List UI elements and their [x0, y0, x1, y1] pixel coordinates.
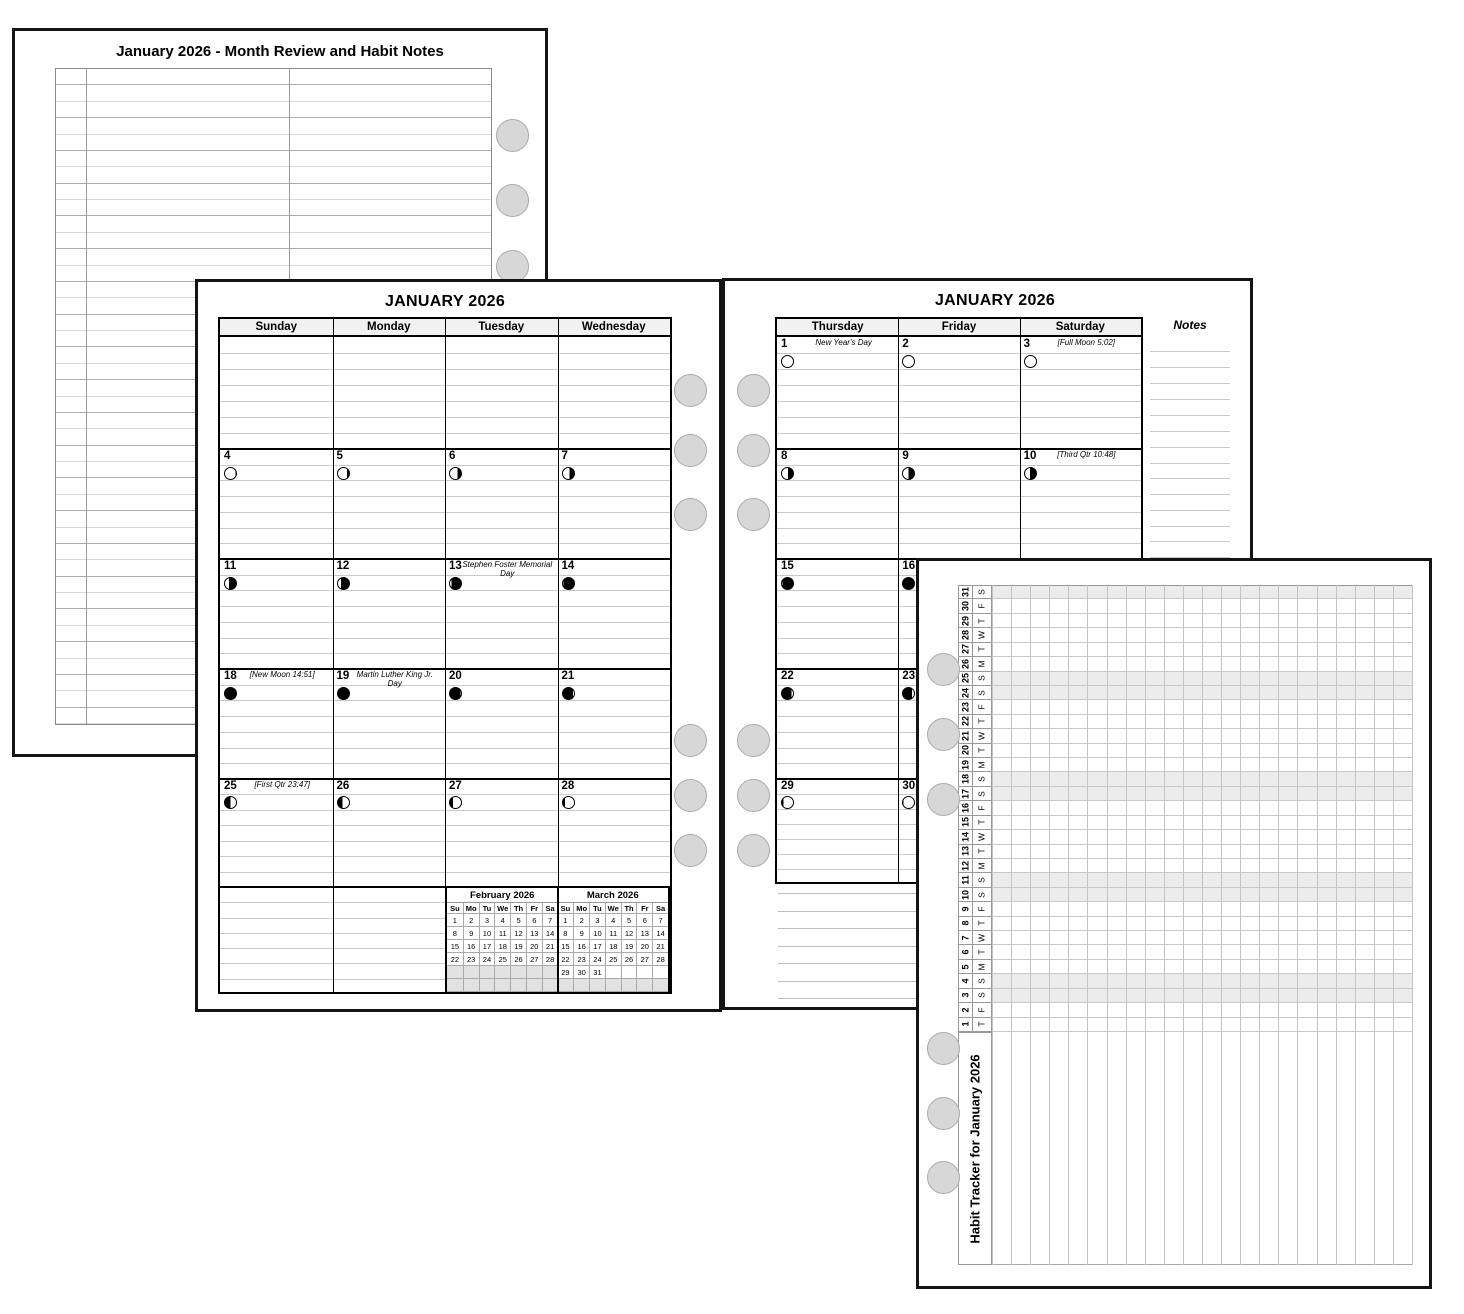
ruled-line — [56, 183, 491, 184]
moon-phase-icon — [224, 687, 237, 700]
habit-column-line — [992, 585, 993, 1265]
mini-day-name: Sa — [542, 903, 558, 914]
calendar-grid: SundayMondayTuesdayWednesday4567111213St… — [218, 317, 672, 994]
tracker-day-number-cell: 29 — [958, 614, 973, 628]
ruled-line — [56, 215, 491, 216]
mini-date-cell: 9 — [463, 927, 479, 940]
mini-date-cell — [510, 979, 526, 992]
ruled-line — [777, 385, 1141, 386]
binder-hole — [927, 718, 960, 751]
tracker-day-number-cell: 5 — [958, 960, 973, 974]
mini-date-cell: 24 — [479, 953, 495, 966]
tracker-day-letter-cell: F — [973, 1003, 992, 1017]
day-header-wednesday: Wednesday — [558, 319, 671, 337]
mini-date-cell — [621, 979, 637, 992]
mini-date-cell: 28 — [652, 953, 668, 966]
review-page-title: January 2026 - Month Review and Habit No… — [15, 43, 545, 60]
mini-date-cell — [463, 966, 479, 979]
moon-phase-icon — [224, 467, 237, 480]
date-number: 2 — [902, 338, 908, 350]
ruled-line — [777, 417, 1141, 418]
mini-date-cell: 28 — [542, 953, 558, 966]
mini-date-cell: 11 — [494, 927, 510, 940]
mini-date-cell: 19 — [510, 940, 526, 953]
moon-phase-icon — [562, 577, 575, 590]
tracker-day-number: 18 — [961, 774, 970, 784]
notes-line — [1150, 431, 1230, 432]
tracker-day-number-cell: 4 — [958, 974, 973, 988]
mini-date-cell: 12 — [621, 927, 637, 940]
tracker-day-number-cell: 11 — [958, 873, 973, 887]
tracker-day-letter-cell: S — [973, 989, 992, 1003]
binder-hole — [927, 1161, 960, 1194]
tracker-day-number-cell: 18 — [958, 772, 973, 786]
tracker-day-letter: F — [978, 1007, 987, 1012]
tracker-day-letter-cell: S — [973, 772, 992, 786]
tracker-day-letter-cell: W — [973, 628, 992, 642]
habit-title-cell: Habit Tracker for January 2026 — [958, 1032, 992, 1265]
date-number: 29 — [781, 780, 794, 792]
mini-date-cell: 15 — [558, 940, 574, 953]
tracker-day-letter-cell: M — [973, 758, 992, 772]
date-annotation: [First Qtr 23:47] — [237, 781, 328, 790]
notes-line — [1150, 510, 1230, 511]
habit-tracker-body: 31S30F29T28W27T26M25S24S23F22T21W20T19M1… — [919, 561, 1429, 1286]
tracker-day-number-cell: 21 — [958, 729, 973, 743]
ruled-line — [56, 150, 491, 151]
notes-line — [1150, 367, 1230, 368]
habit-column-line — [1049, 585, 1050, 1265]
habit-column-line — [1259, 585, 1260, 1265]
habit-column-line — [1202, 585, 1203, 1265]
tracker-day-letter-cell: W — [973, 931, 992, 945]
mini-date-cell: 18 — [605, 940, 621, 953]
date-number: 16 — [902, 560, 915, 572]
mini-date-cell: 6 — [526, 914, 542, 927]
moon-phase-icon — [449, 467, 462, 480]
tracker-day-letter-cell: T — [973, 744, 992, 758]
tracker-day-number: 15 — [961, 817, 970, 827]
column-divider — [86, 69, 87, 724]
mini-date-cell: 26 — [510, 953, 526, 966]
mini-month: February 2026SuMoTuWeThFrSa1234567891011… — [447, 888, 558, 992]
mini-date-cell: 22 — [558, 953, 574, 966]
mini-date-cell: 16 — [573, 940, 589, 953]
tracker-day-number-cell: 30 — [958, 599, 973, 613]
habit-tracker-title: Habit Tracker for January 2026 — [968, 1054, 983, 1243]
mini-date-cell: 2 — [573, 914, 589, 927]
ruled-line — [777, 528, 1141, 529]
page-habit-tracker: 31S30F29T28W27T26M25S24S23F22T21W20T19M1… — [916, 558, 1432, 1289]
notes-line — [1150, 463, 1230, 464]
mini-date-cell: 14 — [542, 927, 558, 940]
date-number: 3 — [1024, 338, 1030, 350]
mini-date-cell — [510, 966, 526, 979]
moon-phase-icon — [781, 577, 794, 590]
binder-hole — [737, 779, 770, 812]
tracker-day-letter: F — [978, 906, 987, 911]
date-number: 30 — [902, 780, 915, 792]
tracker-day-number-cell: 1 — [958, 1018, 973, 1032]
tracker-day-letter: T — [978, 921, 987, 926]
binder-hole — [927, 783, 960, 816]
mini-date-cell — [605, 979, 621, 992]
mini-date-cell: 2 — [463, 914, 479, 927]
column-divider — [898, 319, 899, 882]
tracker-day-number: 14 — [961, 832, 970, 842]
tracker-day-letter-cell: S — [973, 888, 992, 902]
moon-phase-icon — [781, 687, 794, 700]
tracker-day-letter-cell: S — [973, 672, 992, 686]
tracker-day-number-cell: 3 — [958, 989, 973, 1003]
tracker-day-number-cell: 6 — [958, 945, 973, 959]
mini-date-cell: 7 — [542, 914, 558, 927]
mini-date-cell: 20 — [526, 940, 542, 953]
mini-date-cell: 27 — [636, 953, 652, 966]
mini-date-cell — [652, 966, 668, 979]
day-header-tuesday: Tuesday — [445, 319, 558, 337]
moon-phase-icon — [449, 796, 462, 809]
tracker-day-letter: F — [978, 704, 987, 709]
habit-column-line — [1393, 585, 1394, 1265]
day-header-thursday: Thursday — [777, 319, 898, 337]
habit-column-line — [1278, 585, 1279, 1265]
notes-line — [1150, 447, 1230, 448]
moon-phase-icon — [781, 467, 794, 480]
mini-day-name: We — [605, 903, 621, 914]
notes-line — [1150, 526, 1230, 527]
date-number: 25 — [224, 780, 237, 792]
tracker-day-number-cell: 22 — [958, 715, 973, 729]
moon-phase-icon — [902, 577, 915, 590]
tracker-day-letter-cell: F — [973, 700, 992, 714]
mini-date-cell: 19 — [621, 940, 637, 953]
mini-date-cell: 14 — [652, 927, 668, 940]
tracker-day-number: 2 — [961, 1007, 970, 1012]
tracker-day-letter-cell: T — [973, 643, 992, 657]
mini-day-name: Tu — [589, 903, 605, 914]
tracker-day-letter: W — [978, 732, 987, 740]
mini-date-cell: 21 — [652, 940, 668, 953]
tracker-day-number-cell: 20 — [958, 744, 973, 758]
mini-date-cell: 6 — [636, 914, 652, 927]
binder-hole — [674, 779, 707, 812]
tracker-day-letter: T — [978, 1022, 987, 1027]
mini-month: March 2026SuMoTuWeThFrSa1234567891011121… — [558, 888, 669, 992]
mini-date-cell: 17 — [589, 940, 605, 953]
tracker-day-letter-cell: T — [973, 1018, 992, 1032]
tracker-day-number-cell: 9 — [958, 902, 973, 916]
date-number: 11 — [224, 560, 236, 572]
tracker-day-number-cell: 26 — [958, 657, 973, 671]
binder-hole — [927, 1097, 960, 1130]
date-number: 20 — [449, 670, 462, 682]
date-number: 21 — [562, 670, 575, 682]
mini-date-cell: 5 — [510, 914, 526, 927]
tracker-day-number: 11 — [961, 875, 970, 885]
tracker-day-number: 16 — [961, 803, 970, 813]
tracker-day-letter: W — [978, 934, 987, 942]
binder-hole — [674, 374, 707, 407]
moon-phase-icon — [902, 467, 915, 480]
habit-column-line — [1336, 585, 1337, 1265]
mini-date-cell: 12 — [510, 927, 526, 940]
tracker-day-number: 20 — [961, 745, 970, 755]
tracker-day-letter: S — [978, 892, 987, 898]
date-number: 23 — [902, 670, 915, 682]
tracker-day-letter: T — [978, 950, 987, 955]
date-number: 18 — [224, 670, 237, 682]
tracker-day-number: 30 — [961, 601, 970, 611]
mini-date-cell — [463, 979, 479, 992]
binder-hole — [737, 724, 770, 757]
mini-day-name: Su — [558, 903, 574, 914]
tracker-day-letter: M — [978, 862, 987, 869]
mini-date-cell: 18 — [494, 940, 510, 953]
tracker-day-number: 21 — [961, 731, 970, 741]
tracker-day-letter: S — [978, 589, 987, 595]
tracker-day-letter: M — [978, 963, 987, 970]
date-annotation: [Third Qtr 10:48] — [1037, 451, 1136, 460]
ruled-line — [56, 232, 491, 233]
mini-date-cell — [652, 979, 668, 992]
mini-date-cell: 31 — [589, 966, 605, 979]
binder-hole — [496, 184, 529, 217]
date-number: 12 — [337, 560, 350, 572]
tracker-day-number-cell: 25 — [958, 672, 973, 686]
mini-date-cell: 21 — [542, 940, 558, 953]
mini-date-cell: 24 — [589, 953, 605, 966]
day-header-sunday: Sunday — [220, 319, 333, 337]
moon-phase-icon — [449, 687, 462, 700]
tracker-day-letter-cell: T — [973, 945, 992, 959]
tracker-day-number: 25 — [961, 673, 970, 683]
date-number: 22 — [781, 670, 794, 682]
tracker-day-number-cell: 14 — [958, 830, 973, 844]
tracker-day-number-cell: 24 — [958, 686, 973, 700]
binder-hole — [927, 1032, 960, 1065]
tracker-day-number: 26 — [961, 659, 970, 669]
habit-column-line — [1183, 585, 1184, 1265]
tracker-day-letter-cell: T — [973, 614, 992, 628]
tracker-day-letter: S — [978, 978, 987, 984]
tracker-day-letter-cell: W — [973, 830, 992, 844]
date-number: 6 — [449, 450, 455, 462]
mini-date-cell — [526, 979, 542, 992]
tracker-day-letter: S — [978, 877, 987, 883]
tracker-day-letter-cell: T — [973, 816, 992, 830]
binder-hole — [674, 834, 707, 867]
tracker-day-number: 24 — [961, 688, 970, 698]
mini-date-cell: 7 — [652, 914, 668, 927]
tracker-day-number: 23 — [961, 702, 970, 712]
ruled-line — [56, 199, 491, 200]
date-number: 26 — [337, 780, 350, 792]
moon-phase-icon — [1024, 355, 1037, 368]
moon-phase-icon — [337, 796, 350, 809]
mini-date-cell — [573, 979, 589, 992]
tracker-day-letter-cell: F — [973, 902, 992, 916]
tracker-day-letter: T — [978, 820, 987, 825]
date-number: 15 — [781, 560, 794, 572]
mini-day-name: Th — [510, 903, 526, 914]
moon-phase-icon — [224, 796, 237, 809]
moon-phase-icon — [562, 467, 575, 480]
mini-day-name: Fr — [636, 903, 652, 914]
notes-line — [1150, 415, 1230, 416]
date-annotation: Martin Luther King Jr. Day — [350, 671, 441, 688]
habit-column-line — [1087, 585, 1088, 1265]
binder-hole — [737, 498, 770, 531]
mini-date-cell — [494, 966, 510, 979]
ruled-line — [56, 117, 491, 118]
tracker-day-number: 3 — [961, 993, 970, 998]
tracker-day-letter: F — [978, 805, 987, 810]
date-number: 27 — [449, 780, 462, 792]
mini-date-cell: 27 — [526, 953, 542, 966]
ruled-line — [56, 166, 491, 167]
tracker-day-letter-cell: S — [973, 873, 992, 887]
mini-date-cell — [542, 966, 558, 979]
mini-date-cell: 5 — [621, 914, 637, 927]
date-number: 8 — [781, 450, 787, 462]
date-number: 28 — [562, 780, 575, 792]
habit-grid: 31S30F29T28W27T26M25S24S23F22T21W20T19M1… — [958, 585, 1412, 1265]
mini-date-cell: 13 — [526, 927, 542, 940]
mini-date-cell: 13 — [636, 927, 652, 940]
mini-date-cell — [526, 966, 542, 979]
notes-line — [1150, 399, 1230, 400]
tracker-day-number: 28 — [961, 630, 970, 640]
ruled-line — [777, 401, 1141, 402]
tracker-day-number-cell: 17 — [958, 787, 973, 801]
mini-day-name: Th — [621, 903, 637, 914]
mini-date-cell: 8 — [447, 927, 463, 940]
ruled-line — [777, 353, 1141, 354]
day-header-friday: Friday — [898, 319, 1019, 337]
ruled-line — [777, 496, 1141, 497]
tracker-day-number-cell: 2 — [958, 1003, 973, 1017]
tracker-day-letter: S — [978, 993, 987, 999]
tracker-day-letter-cell: T — [973, 845, 992, 859]
tracker-day-number-cell: 15 — [958, 816, 973, 830]
tracker-day-number-cell: 31 — [958, 585, 973, 599]
tracker-day-letter-cell: S — [973, 686, 992, 700]
notes-line — [1150, 351, 1230, 352]
mini-date-cell — [558, 979, 574, 992]
mini-date-cell: 4 — [494, 914, 510, 927]
tracker-day-letter-cell: W — [973, 729, 992, 743]
habit-column-line — [1126, 585, 1127, 1265]
mini-date-cell: 3 — [479, 914, 495, 927]
mini-date-cell — [542, 979, 558, 992]
tracker-day-letter: S — [978, 675, 987, 681]
tracker-day-number: 10 — [961, 889, 970, 899]
mini-date-cell: 8 — [558, 927, 574, 940]
habit-column-line — [1317, 585, 1318, 1265]
ruled-line — [56, 101, 491, 102]
binder-hole — [496, 250, 529, 283]
habit-column-line — [1107, 585, 1108, 1265]
moon-phase-icon — [562, 687, 575, 700]
mini-date-cell — [447, 966, 463, 979]
mini-date-cell: 9 — [573, 927, 589, 940]
habit-column-line — [1030, 585, 1031, 1265]
tracker-day-letter: W — [978, 833, 987, 841]
tracker-day-letter: M — [978, 761, 987, 768]
mini-day-name: Mo — [463, 903, 479, 914]
mini-month-title: March 2026 — [558, 888, 669, 903]
mini-date-cell — [636, 966, 652, 979]
tracker-day-letter-cell: F — [973, 801, 992, 815]
notes-line — [1150, 478, 1230, 479]
day-header-saturday: Saturday — [1020, 319, 1141, 337]
notes-line — [1150, 541, 1230, 542]
mini-day-name: Su — [447, 903, 463, 914]
mini-date-cell: 11 — [605, 927, 621, 940]
date-number: 10 — [1024, 450, 1037, 462]
habit-column-line — [1355, 585, 1356, 1265]
binder-hole — [496, 119, 529, 152]
mini-day-name: Fr — [526, 903, 542, 914]
binder-hole — [674, 724, 707, 757]
tracker-day-letter: W — [978, 631, 987, 639]
mini-date-cell: 1 — [558, 914, 574, 927]
notes-line — [1150, 494, 1230, 495]
binder-hole — [927, 653, 960, 686]
calendar-left-body: SundayMondayTuesdayWednesday4567111213St… — [198, 282, 719, 1009]
mini-date-cell: 16 — [463, 940, 479, 953]
tracker-day-number: 31 — [961, 587, 970, 597]
date-number: 5 — [337, 450, 343, 462]
moon-phase-icon — [449, 577, 462, 590]
moon-phase-icon — [902, 796, 915, 809]
tracker-day-letter-cell: M — [973, 960, 992, 974]
habit-column-line — [1374, 585, 1375, 1265]
moon-phase-icon — [337, 577, 350, 590]
binder-hole — [737, 434, 770, 467]
ruled-line — [777, 369, 1141, 370]
habit-column-line — [1412, 585, 1413, 1265]
habit-column-line — [1164, 585, 1165, 1265]
tracker-day-letter: T — [978, 618, 987, 623]
planner-pages-mockup: January 2026 - Month Review and Habit No… — [0, 0, 1464, 1314]
mini-date-cell: 3 — [589, 914, 605, 927]
mini-date-cell: 30 — [573, 966, 589, 979]
mini-date-cell — [621, 966, 637, 979]
tracker-day-number-cell: 10 — [958, 888, 973, 902]
tracker-day-number-cell: 27 — [958, 643, 973, 657]
mini-date-cell: 26 — [621, 953, 637, 966]
habit-column-line — [1221, 585, 1222, 1265]
moon-phase-icon — [902, 687, 915, 700]
tracker-day-number: 9 — [961, 906, 970, 911]
column-divider — [333, 319, 334, 992]
date-number: 4 — [224, 450, 230, 462]
moon-phase-icon — [902, 355, 915, 368]
tracker-day-letter: T — [978, 748, 987, 753]
tracker-day-letter-cell: T — [973, 917, 992, 931]
mini-date-cell: 23 — [463, 953, 479, 966]
mini-date-cell — [589, 979, 605, 992]
date-number: 9 — [902, 450, 908, 462]
mini-date-cell: 25 — [494, 953, 510, 966]
tracker-day-letter-cell: T — [973, 715, 992, 729]
tracker-day-number-cell: 19 — [958, 758, 973, 772]
tracker-day-number: 7 — [961, 935, 970, 940]
tracker-day-letter: S — [978, 690, 987, 696]
date-number: 14 — [562, 560, 575, 572]
